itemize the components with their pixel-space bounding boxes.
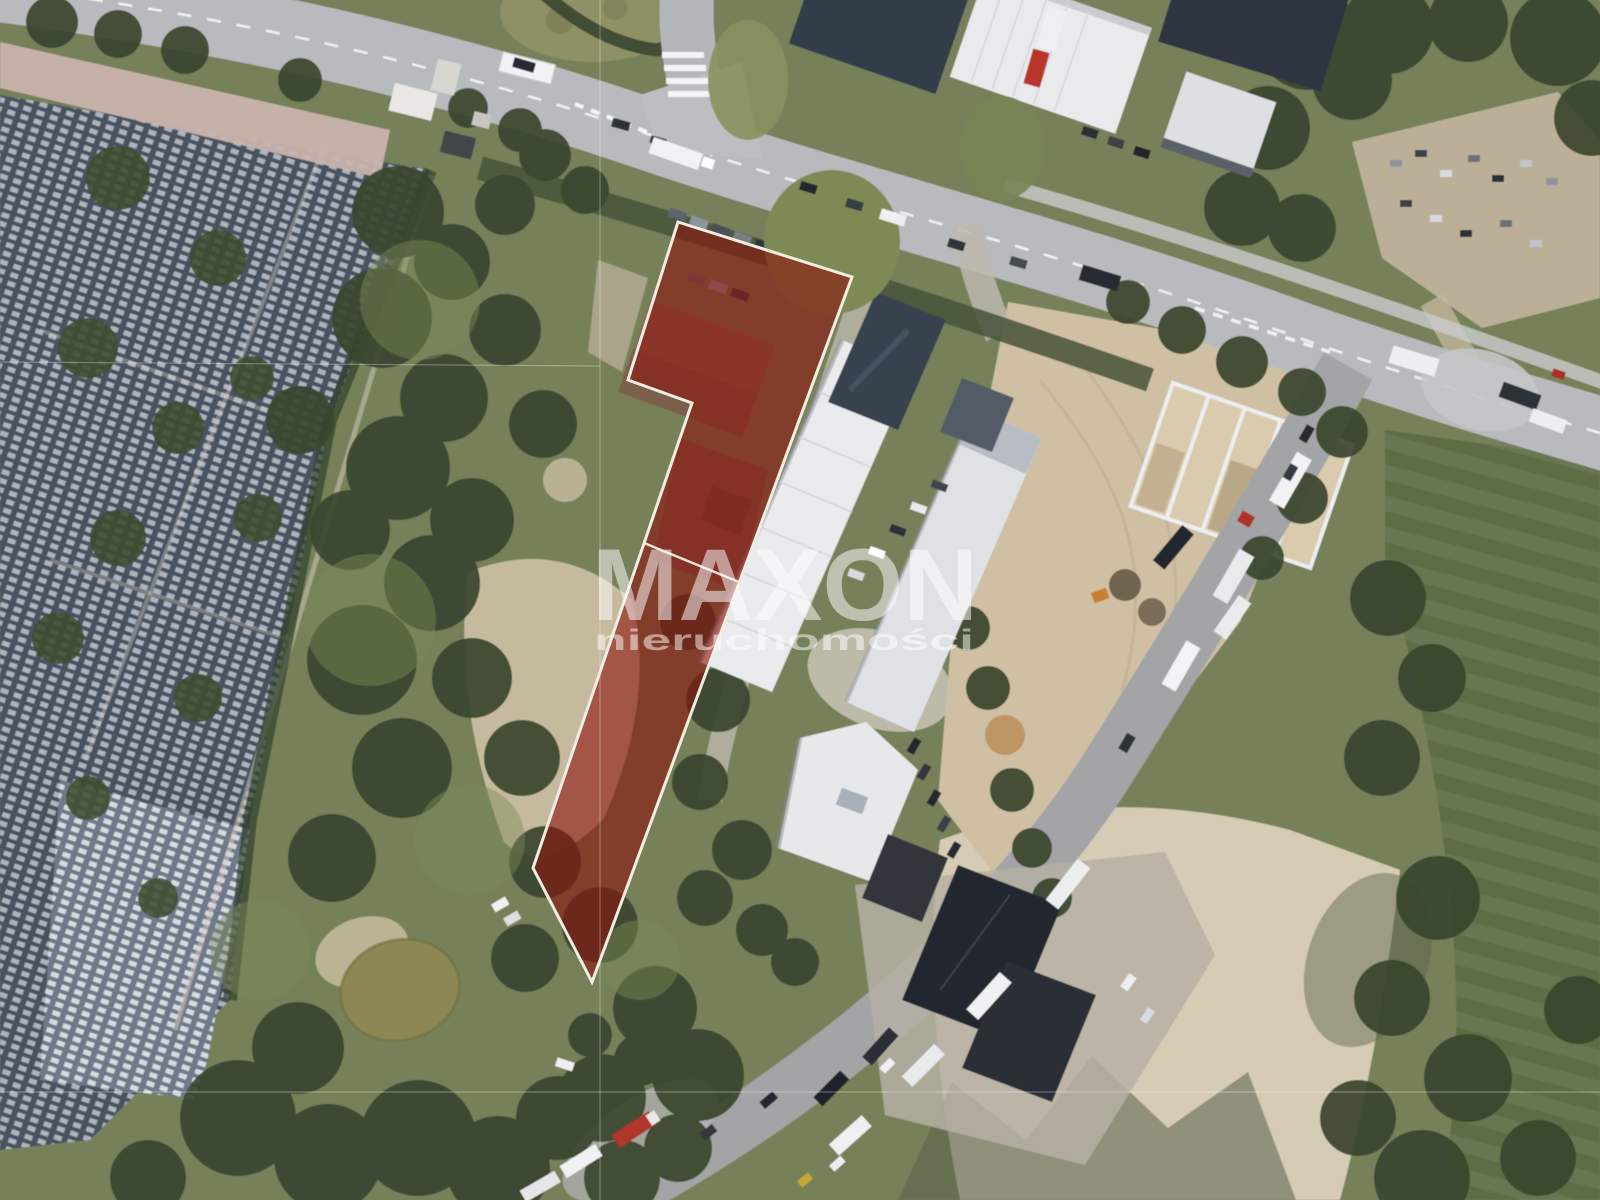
soil-heap bbox=[1109, 569, 1141, 601]
aerial-photo: MAXON nieruchomości bbox=[0, 0, 1600, 1200]
site-plan-svg: MAXON nieruchomości bbox=[0, 0, 1600, 1200]
grass-patch bbox=[708, 20, 788, 140]
watermark-subtitle: nieruchomości bbox=[594, 624, 974, 657]
autumn-tree bbox=[985, 715, 1025, 755]
grass-patch bbox=[960, 96, 1044, 200]
dirt-patch-small bbox=[543, 458, 587, 502]
soil-heap bbox=[1138, 598, 1166, 626]
